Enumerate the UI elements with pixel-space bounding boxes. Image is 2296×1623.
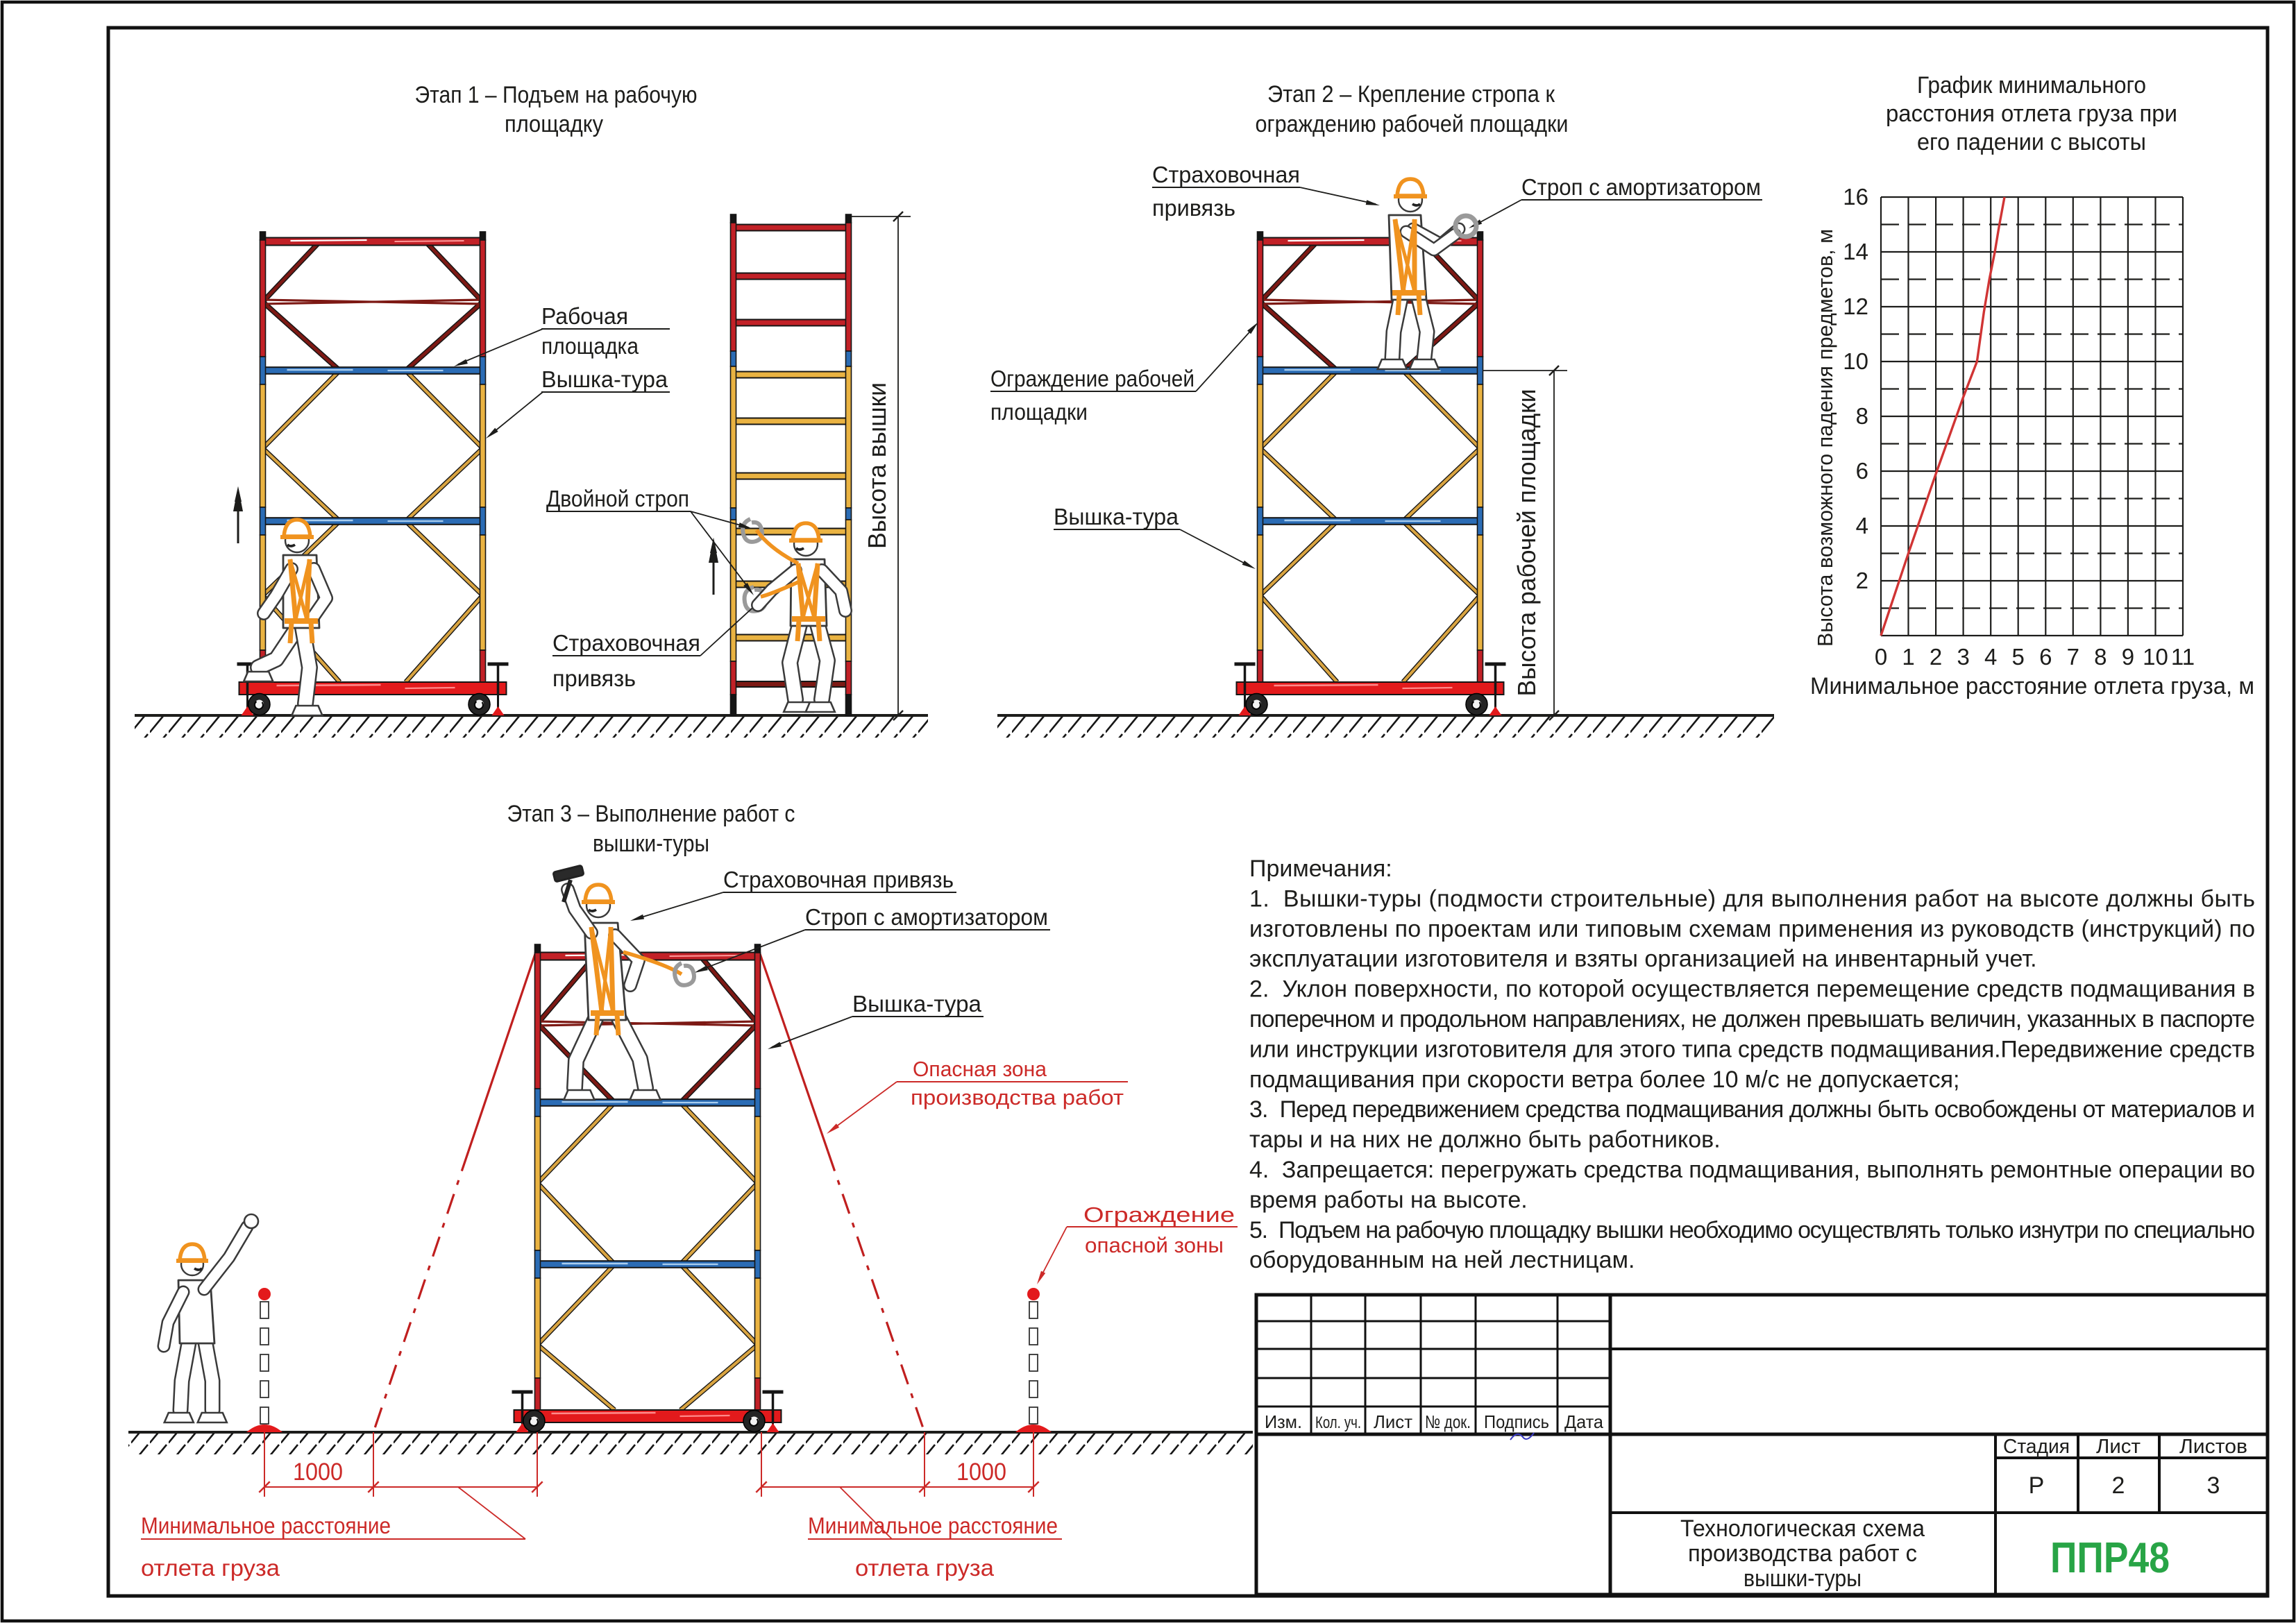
svg-text:Листов: Листов (2179, 1436, 2247, 1458)
svg-text:Лист: Лист (2096, 1436, 2141, 1458)
svg-text:эксплуатации изготовителя и вз: эксплуатации изготовителя и взяты органи… (1249, 946, 2037, 972)
svg-text:Высота возможного падения пред: Высота возможного падения предметов, м (1813, 229, 1837, 647)
svg-text:Примечания:: Примечания: (1249, 856, 1392, 882)
svg-text:Дата: Дата (1564, 1411, 1604, 1432)
svg-text:Двойной строп: Двойной строп (546, 486, 689, 511)
svg-text:3. Перед передвижением средст: 3. Перед передвижением средства подмащив… (1249, 1096, 2255, 1123)
svg-text:2. Уклон поверхности, по кото: 2. Уклон поверхности, по которой осущест… (1249, 976, 2255, 1003)
svg-text:Р: Р (2029, 1472, 2045, 1499)
svg-text:Опасная зона: Опасная зона (913, 1057, 1047, 1081)
svg-text:2: 2 (1856, 568, 1868, 593)
svg-text:Высота вышки: Высота вышки (863, 382, 891, 549)
svg-text:привязь: привязь (1152, 195, 1235, 221)
svg-text:1000: 1000 (293, 1459, 343, 1486)
svg-text:производства работ с: производства работ с (1688, 1540, 1917, 1567)
svg-text:или инструкции изготовителя дл: или инструкции изготовителя для этого ти… (1249, 1036, 2255, 1062)
svg-text:расстония отлета груза при: расстония отлета груза при (1886, 101, 2177, 127)
svg-text:Вышка-тура: Вышка-тура (1054, 504, 1179, 529)
svg-text:1000: 1000 (956, 1459, 1006, 1486)
svg-text:поперечном и продольном направ: поперечном и продольном направлениях, не… (1249, 1006, 2255, 1033)
svg-text:12: 12 (1843, 294, 1868, 319)
svg-text:время работы на высоте.: время работы на высоте. (1249, 1187, 1528, 1213)
svg-text:11: 11 (2171, 644, 2195, 670)
svg-text:8: 8 (1856, 403, 1868, 429)
svg-text:отлета груза: отлета груза (855, 1555, 995, 1581)
svg-text:Вышка-тура: Вышка-тура (852, 991, 982, 1017)
svg-text:Минимальное расстояние: Минимальное расстояние (141, 1513, 391, 1538)
svg-text:оборудованным на ней лестницам: оборудованным на ней лестницам. (1249, 1247, 1635, 1273)
svg-text:4: 4 (1856, 513, 1868, 538)
svg-text:привязь: привязь (552, 665, 636, 691)
svg-text:Рабочая: Рабочая (541, 303, 628, 329)
svg-text:ограждению рабочей площадки: ограждению рабочей площадки (1256, 111, 1569, 137)
svg-text:Этап 1 – Подъем на рабочую: Этап 1 – Подъем на рабочую (415, 82, 698, 108)
svg-text:Страховочная: Страховочная (552, 630, 700, 656)
svg-text:Стадия: Стадия (2003, 1436, 2070, 1458)
svg-text:Кол. уч.: Кол. уч. (1315, 1413, 1361, 1432)
svg-text:10: 10 (1843, 348, 1868, 374)
svg-text:отлета груза: отлета груза (141, 1555, 280, 1581)
svg-text:Ограждение рабочей: Ограждение рабочей (990, 366, 1195, 391)
svg-text:9: 9 (2122, 644, 2134, 670)
svg-text:6: 6 (2039, 644, 2052, 670)
svg-text:1. Вышки-туры (подмости строи: 1. Вышки-туры (подмости строительные) дл… (1249, 885, 2255, 912)
svg-text:Лист: Лист (1374, 1411, 1412, 1432)
svg-text:Изм.: Изм. (1265, 1411, 1302, 1432)
svg-text:2: 2 (2112, 1472, 2125, 1499)
svg-text:3: 3 (2207, 1472, 2220, 1499)
svg-text:Страховочная: Страховочная (1152, 162, 1300, 187)
svg-text:Технологическая схема: Технологическая схема (1680, 1515, 1925, 1542)
svg-text:Строп с амортизатором: Строп с амортизатором (1521, 174, 1761, 200)
svg-text:16: 16 (1843, 184, 1868, 210)
svg-text:5: 5 (2012, 644, 2025, 670)
svg-text:тары и на них не должно быть р: тары и на них не должно быть работников. (1249, 1127, 1721, 1153)
svg-text:Вышка-тура: Вышка-тура (541, 366, 668, 392)
svg-text:4. Запрещается: перегружать с: 4. Запрещается: перегружать средства под… (1249, 1157, 2255, 1183)
svg-text:Минимальное расстояние: Минимальное расстояние (808, 1513, 1058, 1538)
svg-text:8: 8 (2094, 644, 2107, 670)
svg-text:Ограждение: Ограждение (1083, 1203, 1235, 1227)
svg-text:7: 7 (2067, 644, 2079, 670)
svg-text:5. Подъем на рабочую площадку: 5. Подъем на рабочую площадку вышки необ… (1249, 1217, 2255, 1243)
svg-text:площадку: площадку (505, 111, 603, 137)
svg-text:опасной зоны: опасной зоны (1085, 1233, 1224, 1257)
svg-text:площадки: площадки (990, 399, 1088, 425)
svg-text:вышки-туры: вышки-туры (1744, 1565, 1862, 1592)
svg-text:Этап 3 – Выполнение работ с: Этап 3 – Выполнение работ с (507, 801, 795, 827)
svg-text:вышки-туры: вышки-туры (593, 831, 709, 857)
svg-text:0: 0 (1875, 644, 1887, 670)
svg-text:ППР48: ППР48 (2050, 1534, 2170, 1582)
svg-text:Подпись: Подпись (1484, 1411, 1549, 1432)
svg-text:изготовлены по проектам или ти: изготовлены по проектам или типовым схем… (1249, 916, 2255, 942)
svg-text:6: 6 (1856, 458, 1868, 484)
svg-text:подмащивания при скорости ветр: подмащивания при скорости ветра более 10… (1249, 1067, 1959, 1093)
svg-text:2: 2 (1930, 644, 1942, 670)
svg-text:№ док.: № док. (1425, 1411, 1471, 1432)
svg-text:его падении с высоты: его падении с высоты (1917, 129, 2146, 155)
svg-text:3: 3 (1957, 644, 1969, 670)
svg-text:Страховочная привязь: Страховочная привязь (723, 867, 954, 892)
svg-text:площадка: площадка (541, 333, 639, 359)
svg-text:4: 4 (1984, 644, 1997, 670)
svg-text:Этап 2 – Крепление стропа к: Этап 2 – Крепление стропа к (1267, 81, 1555, 108)
svg-text:14: 14 (1843, 239, 1868, 264)
svg-text:производства работ: производства работ (911, 1085, 1124, 1110)
svg-text:Минимальное расстояние отлета: Минимальное расстояние отлета груза, м (1810, 673, 2254, 699)
svg-text:1: 1 (1902, 644, 1914, 670)
svg-text:График минимального: График минимального (1917, 72, 2146, 99)
svg-text:10: 10 (2143, 644, 2168, 670)
svg-text:Строп с амортизатором: Строп с амортизатором (805, 904, 1048, 930)
svg-text:Высота рабочей площадки: Высота рабочей площадки (1512, 389, 1541, 697)
